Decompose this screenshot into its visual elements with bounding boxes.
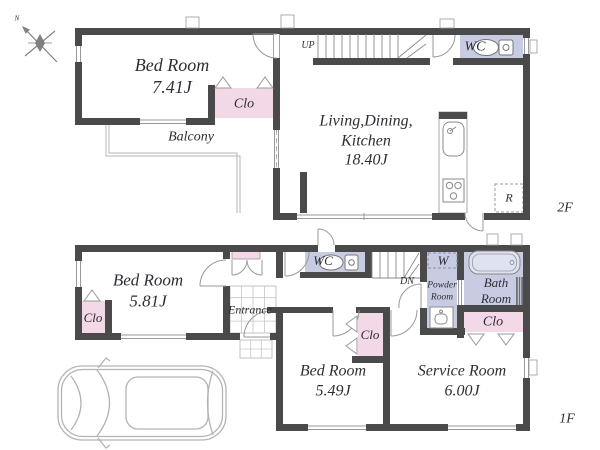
- label-bedroom-south-1f: Bed Room5.49J: [300, 361, 366, 400]
- compass-icon: [22, 26, 57, 62]
- label-bedroom-west-1f: Bed Room5.81J: [113, 270, 183, 311]
- floor-plan: Bed Room7.41J Clo Balcony UP WC Living,D…: [0, 0, 600, 450]
- label-closet-2f: Clo: [234, 95, 254, 112]
- stairs-1f: [372, 252, 420, 278]
- label-stairs-up: UP: [301, 40, 314, 52]
- label-bedroom-2f: Bed Room7.41J: [135, 55, 209, 99]
- label-floor-2f: 2F: [557, 199, 573, 216]
- label-closet-west-1f: Clo: [84, 310, 103, 326]
- label-service-room: Service Room6.00J: [418, 361, 506, 400]
- label-balcony: Balcony: [168, 128, 214, 145]
- label-wc-2f: WC: [465, 38, 486, 55]
- stove-icon: [443, 179, 464, 202]
- label-closet-service: Clo: [483, 313, 503, 330]
- label-compass-north: N: [15, 15, 20, 24]
- label-ldk: Living,Dining,Kitchen18.40J: [319, 112, 412, 171]
- label-wc-1f: WC: [313, 253, 333, 269]
- label-refrigerator: R: [505, 191, 512, 206]
- kitchen-sink: [443, 122, 464, 156]
- bathtub-icon: [469, 251, 520, 274]
- stairs-2f: [318, 34, 426, 58]
- label-powder-room: PowderRoom: [427, 280, 457, 303]
- kitchen-counter: [439, 112, 467, 213]
- label-entrance: Entrance: [228, 303, 272, 318]
- bath-window-louver: [516, 277, 523, 305]
- entrance-tiles: [230, 286, 276, 358]
- car-icon: [58, 358, 226, 448]
- label-washer: W: [438, 253, 449, 269]
- label-stairs-dn: DN: [400, 276, 414, 288]
- label-floor-1f: 1F: [559, 410, 575, 427]
- label-bath-room: BathRoom: [481, 275, 511, 307]
- label-closet-hall: Clo: [361, 327, 380, 343]
- washbasin-icon: [430, 307, 453, 328]
